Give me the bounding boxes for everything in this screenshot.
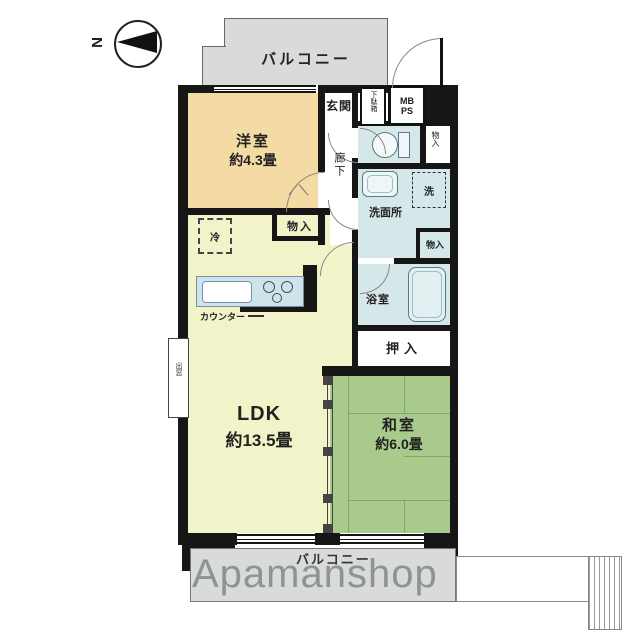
tatami-line <box>348 500 450 501</box>
hall-closet-label: 物入 <box>430 131 441 147</box>
genkan-label: 玄関 <box>326 97 352 114</box>
entrance-door-leaf <box>440 38 443 88</box>
tatami-line <box>348 376 349 533</box>
stove-burner-icon <box>263 281 275 293</box>
yoshitsu-name: 洋室 <box>188 130 318 151</box>
balcony-top-label: バルコニー <box>232 48 380 69</box>
tatami-line <box>404 456 450 457</box>
fusuma-handle <box>323 376 333 385</box>
wall <box>272 236 323 241</box>
yoshitsu-size: 約4.3畳 <box>188 150 318 170</box>
wall <box>315 533 340 545</box>
senmenjo-label: 洗面所 <box>369 204 402 220</box>
washbasin-inner <box>367 175 393 193</box>
refrigerator-space: 冷 <box>198 218 232 254</box>
refrigerator-label: 冷 <box>210 229 220 244</box>
washitsu-name: 和室 <box>348 414 450 435</box>
shoe-cabinet-label: 下駄箱 <box>368 91 378 112</box>
entrance-door-arc <box>392 38 442 88</box>
stove-burner-icon <box>272 293 282 303</box>
wall <box>322 366 458 376</box>
watermark: Apamanshop <box>192 552 438 597</box>
mb-ps-box: MB PS <box>388 85 426 126</box>
window-ldk <box>237 534 315 544</box>
washer-space: 洗 <box>412 172 446 208</box>
room-ldk <box>188 215 330 533</box>
mb-label: MB <box>400 96 414 106</box>
yoshitsu-closet-label: 物入 <box>277 218 323 234</box>
wall <box>352 163 452 169</box>
compass-n-label: N <box>89 37 106 48</box>
wall <box>394 258 452 264</box>
bathtub-inner <box>412 271 442 318</box>
ldk-size: 約13.5畳 <box>188 426 330 451</box>
fusuma-handle <box>323 524 333 533</box>
washer-label: 洗 <box>424 183 434 198</box>
oshiire-label: 押入 <box>358 338 450 357</box>
stove-burner-icon <box>281 281 293 293</box>
ps-label: PS <box>400 106 414 116</box>
rouka-label: 廊下 <box>331 152 347 178</box>
tatami-line <box>404 376 405 413</box>
toilet-tank <box>398 132 410 158</box>
window-yoshitsu <box>214 85 316 93</box>
compass-triangle-icon <box>117 31 157 53</box>
neighbor-balcony-outline <box>456 556 590 602</box>
kitchen-sink-icon <box>202 281 252 303</box>
window-washitsu <box>340 534 424 544</box>
balcony-top-step <box>202 46 226 90</box>
wall <box>416 228 452 232</box>
fusuma-handle <box>323 494 333 503</box>
washitsu-size: 約6.0畳 <box>348 434 450 454</box>
wall <box>450 93 458 545</box>
wall <box>178 418 188 545</box>
wall <box>318 93 325 172</box>
bay-window <box>168 338 189 418</box>
wall <box>426 85 458 126</box>
tatami-line <box>404 500 405 533</box>
balcony-partition-hatch <box>588 556 622 630</box>
yokushitsu-label: 浴室 <box>366 291 390 307</box>
counter-leader-line <box>248 315 264 317</box>
senmen-closet-label: 物入 <box>418 238 452 251</box>
counter-label: カウンター <box>200 310 245 323</box>
ldk-name: LDK <box>188 403 330 426</box>
bay-window-label: 出窓 <box>173 362 183 376</box>
wall <box>352 325 452 331</box>
wall <box>420 126 426 163</box>
floorplan: N バルコニー <box>0 0 640 640</box>
